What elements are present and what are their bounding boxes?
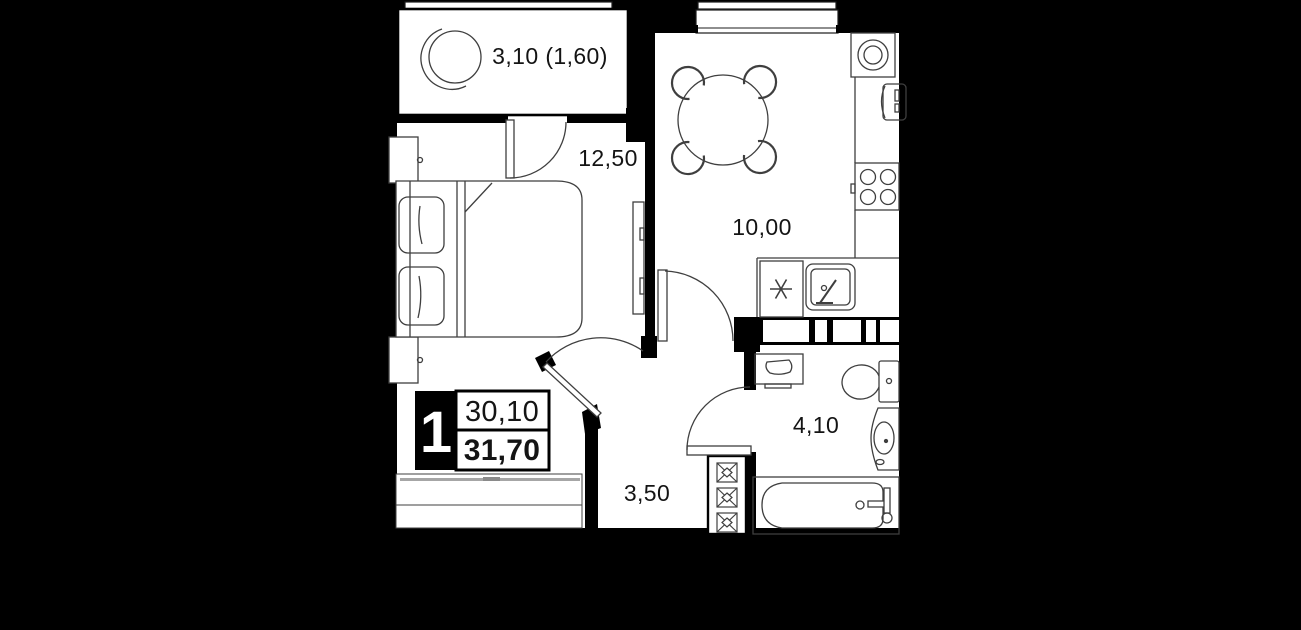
wall-bathroom-left-upper [744,345,756,390]
wardrobe-rail-tick [483,477,500,481]
room-label-bedroom: 12,50 [578,145,638,171]
door-leaf [506,120,514,178]
duct-box [833,320,861,342]
kitchen-window [696,2,838,33]
window-frame [696,10,838,33]
window-outer-sill [698,2,836,9]
badge-total-area: 31,70 [464,434,541,467]
wardrobe-icon [396,474,582,528]
door-leaf [687,446,751,455]
wall-kitchen-left [645,25,655,338]
wall-stub-kitchen-door [641,336,657,358]
wall-corner-block [626,108,655,142]
badge-living-area: 30,10 [465,396,539,428]
floor-plan-canvas: 3,10 (1,60) 12,50 10,00 3,50 4,10 1 30,1… [0,0,1301,630]
room-label-kitchen: 10,00 [732,214,792,240]
window-casement-icon [389,337,418,383]
room-label-bathroom: 4,10 [793,412,839,438]
wall-right [899,25,908,537]
window-casement-icon [389,137,418,183]
wall-kitchen-top-right [836,25,908,33]
unit-badge: 1 30,10 31,70 [415,391,549,470]
wall-hallway-left [585,415,598,537]
duct-box [866,320,876,342]
tub-mixer [884,488,890,513]
duct-box [880,320,899,342]
dining-table-icon [678,75,768,165]
wall-bedroom-top-right [567,115,628,123]
wall-bedroom-top-left [388,115,508,123]
floor-plan: 3,10 (1,60) 12,50 10,00 3,50 4,10 1 30,1… [0,0,1301,630]
badge-rooms-count: 1 [420,400,452,465]
door-leaf [658,270,667,341]
room-kitchen-floor [650,25,905,347]
bed-icon [396,181,582,337]
room-hallway [708,456,746,534]
duct-box [815,320,827,342]
wall-bottom [388,528,908,537]
room-label-hallway: 3,50 [624,480,670,506]
room-label-balcony: 3,10 (1,60) [492,43,608,69]
duct-box [763,320,809,342]
